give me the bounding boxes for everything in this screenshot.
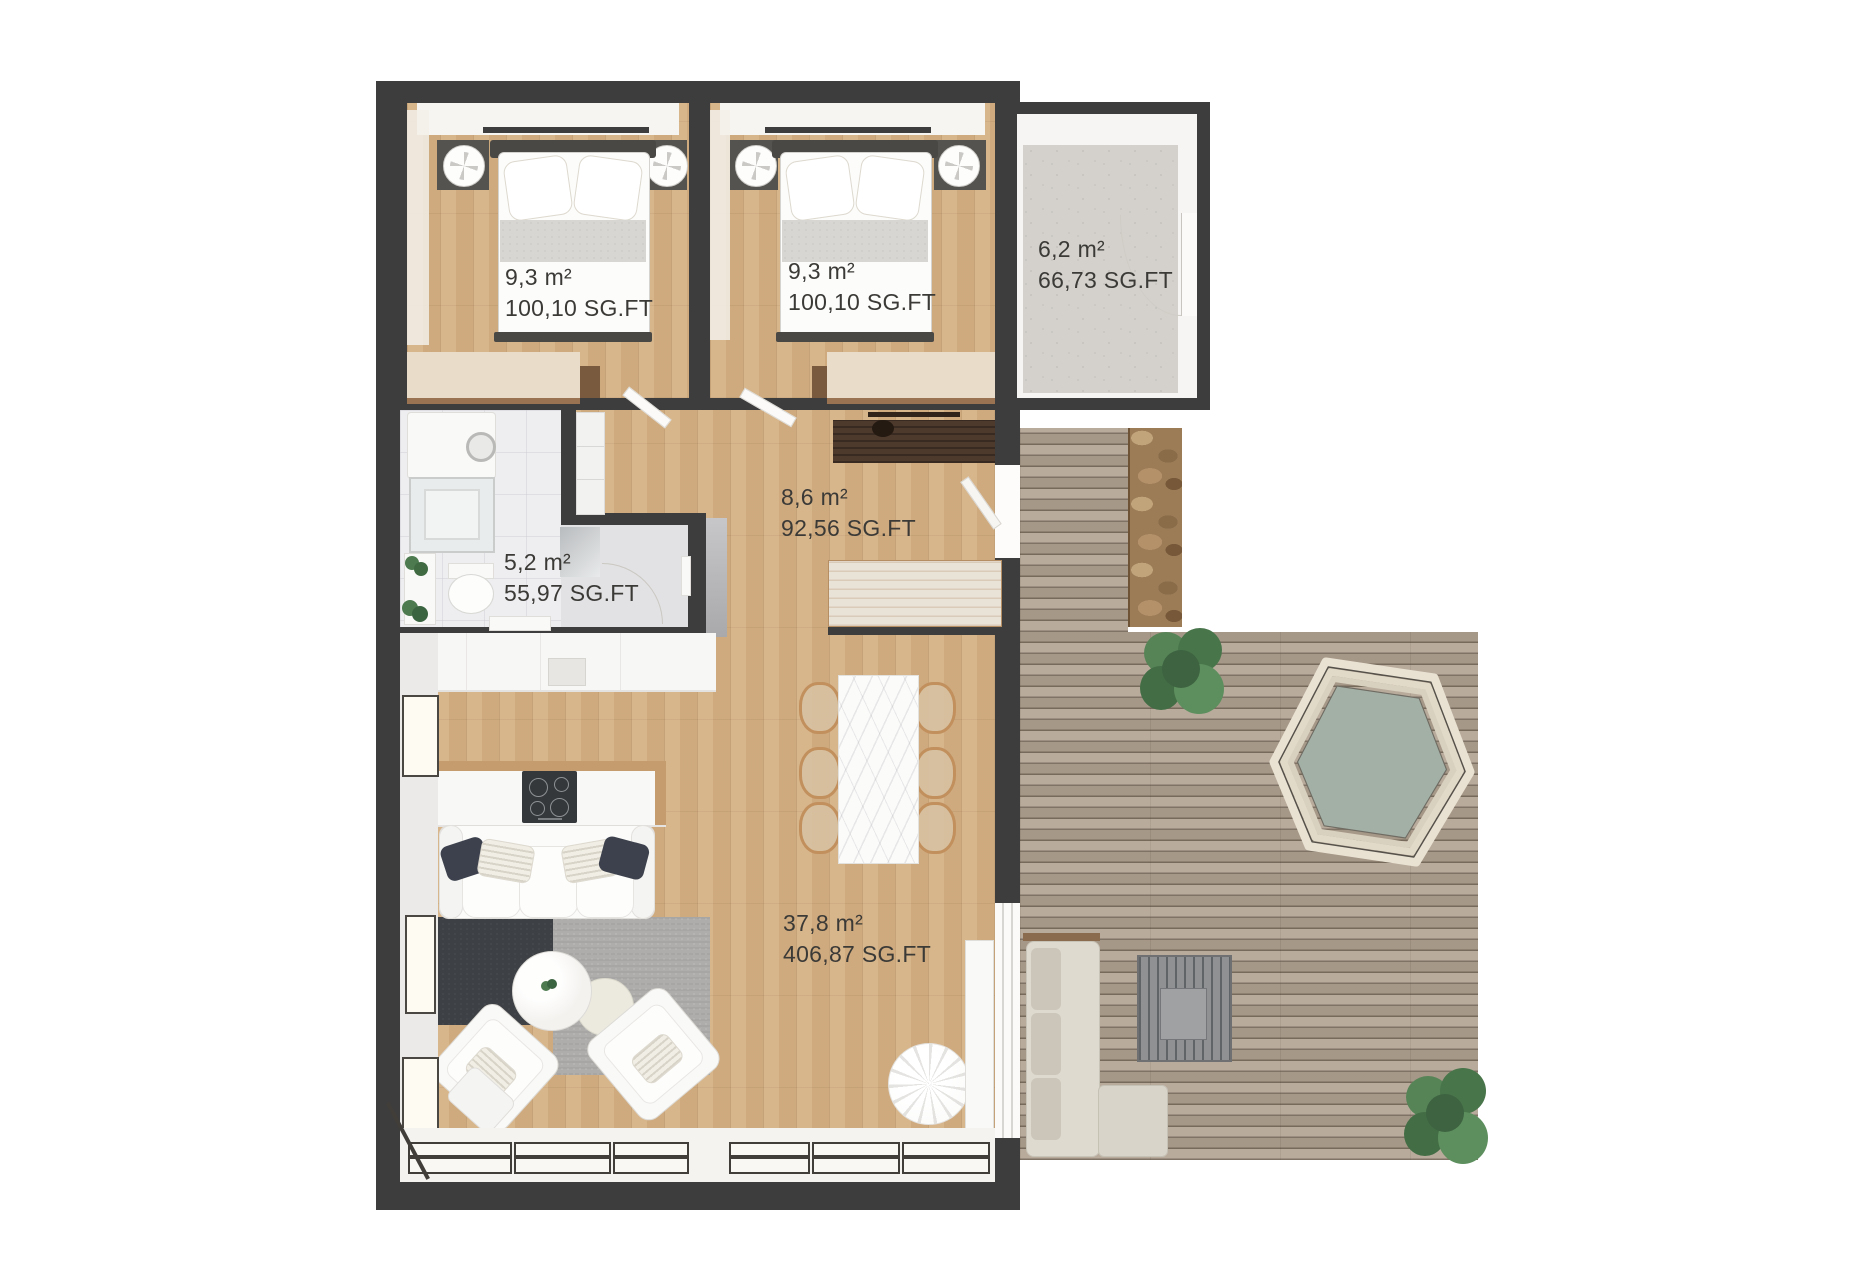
dresser-bench xyxy=(812,366,827,398)
bed-pillow xyxy=(572,154,644,222)
deck-plant xyxy=(1400,1068,1492,1170)
bed-pillow xyxy=(854,154,926,222)
storage-door-leaf xyxy=(1181,213,1197,316)
area-imperial: 100,10 SG.FT xyxy=(505,293,653,324)
dining-chair xyxy=(914,682,956,734)
area-metric: 9,3 m² xyxy=(788,256,936,287)
cooktop xyxy=(522,771,577,823)
window-pane xyxy=(902,1142,990,1174)
bathroom-shelf xyxy=(489,616,551,631)
bed-foot-frame xyxy=(494,332,652,342)
bedroom-2-light-streak xyxy=(710,110,730,340)
bathroom-right-wall xyxy=(561,410,576,525)
window-pane xyxy=(729,1142,810,1174)
toilet-bowl xyxy=(448,574,494,614)
bed-foot-frame xyxy=(776,332,934,342)
room-label-living: 37,8 m² 406,87 SG.FT xyxy=(783,908,931,970)
room-label-hallway: 8,6 m² 92,56 SG.FT xyxy=(781,482,916,544)
hot-tub xyxy=(1262,648,1482,870)
kitchen-sink-board xyxy=(548,658,586,686)
island-wood-edge xyxy=(429,761,666,771)
area-metric: 37,8 m² xyxy=(783,908,931,939)
area-imperial: 100,10 SG.FT xyxy=(788,287,936,318)
room-label-bedroom-1: 9,3 m² 100,10 SG.FT xyxy=(505,262,653,324)
pouf xyxy=(888,1043,970,1125)
area-metric: 6,2 m² xyxy=(1038,234,1173,265)
bed-blanket xyxy=(500,220,646,262)
dresser-bench xyxy=(580,366,600,398)
bedside-lamp xyxy=(938,145,980,187)
deck-glass-door xyxy=(995,903,1020,1138)
area-metric: 5,2 m² xyxy=(504,547,639,578)
console-tray xyxy=(868,412,960,417)
fire-table-center xyxy=(1160,988,1207,1040)
bedside-lamp xyxy=(735,145,777,187)
coffee-table-plant xyxy=(541,979,557,995)
bedside-lamp xyxy=(443,145,485,187)
outdoor-sofa-ottoman xyxy=(1098,1085,1168,1157)
room-label-bathroom: 5,2 m² 55,97 SG.FT xyxy=(504,547,639,609)
bed-pillow xyxy=(502,154,574,222)
area-imperial: 66,73 SG.FT xyxy=(1038,265,1173,296)
area-imperial: 55,97 SG.FT xyxy=(504,578,639,609)
outdoor-sofa-cushion xyxy=(1031,1078,1061,1140)
hall-closet xyxy=(576,412,605,515)
console-bowl xyxy=(872,420,894,437)
outdoor-sofa-cushion xyxy=(1031,948,1061,1010)
outdoor-sofa-back-rail xyxy=(1023,933,1100,941)
entry-opening xyxy=(995,465,1020,558)
washer-drum xyxy=(466,432,496,462)
dining-chair xyxy=(799,682,841,734)
kitchen-tall-cabinet xyxy=(706,518,727,637)
vanity-plant xyxy=(402,598,430,624)
deck-plant xyxy=(1138,628,1230,718)
room-label-storage: 6,2 m² 66,73 SG.FT xyxy=(1038,234,1173,296)
left-window xyxy=(405,915,436,1014)
window-pane xyxy=(613,1142,689,1174)
area-imperial: 92,56 SG.FT xyxy=(781,513,916,544)
bedroom-2-curtain-rail xyxy=(765,127,931,133)
outdoor-sofa-cushion xyxy=(1031,1013,1061,1075)
window-pane xyxy=(812,1142,900,1174)
room-label-bedroom-2: 9,3 m² 100,10 SG.FT xyxy=(788,256,936,318)
dining-chair xyxy=(914,747,956,799)
shower-tray xyxy=(424,489,480,540)
towel-rail xyxy=(681,556,691,596)
area-imperial: 406,87 SG.FT xyxy=(783,939,931,970)
left-window xyxy=(402,695,439,777)
stone-wall-feature xyxy=(1128,428,1182,627)
deck-upper-strip xyxy=(1020,428,1128,632)
tv-console xyxy=(833,420,995,463)
bedroom-1-curtain-rail xyxy=(483,127,649,133)
dresser xyxy=(407,352,580,404)
area-metric: 8,6 m² xyxy=(781,482,916,513)
dining-chair xyxy=(914,802,956,854)
area-metric: 9,3 m² xyxy=(505,262,653,293)
dining-chair xyxy=(799,802,841,854)
dresser xyxy=(827,352,995,404)
wall-bench xyxy=(965,940,994,1149)
island-wood-end xyxy=(655,761,666,825)
floor-plan: 9,3 m² 100,10 SG.FT 9,3 m² 100,10 SG.FT … xyxy=(0,0,1864,1283)
vanity-plant xyxy=(405,556,429,578)
dining-table xyxy=(838,675,919,864)
dining-chair xyxy=(799,747,841,799)
sideboard xyxy=(828,560,1002,627)
bedroom-1-light-streak xyxy=(407,110,429,345)
bed-pillow xyxy=(784,154,856,222)
window-pane xyxy=(514,1142,611,1174)
